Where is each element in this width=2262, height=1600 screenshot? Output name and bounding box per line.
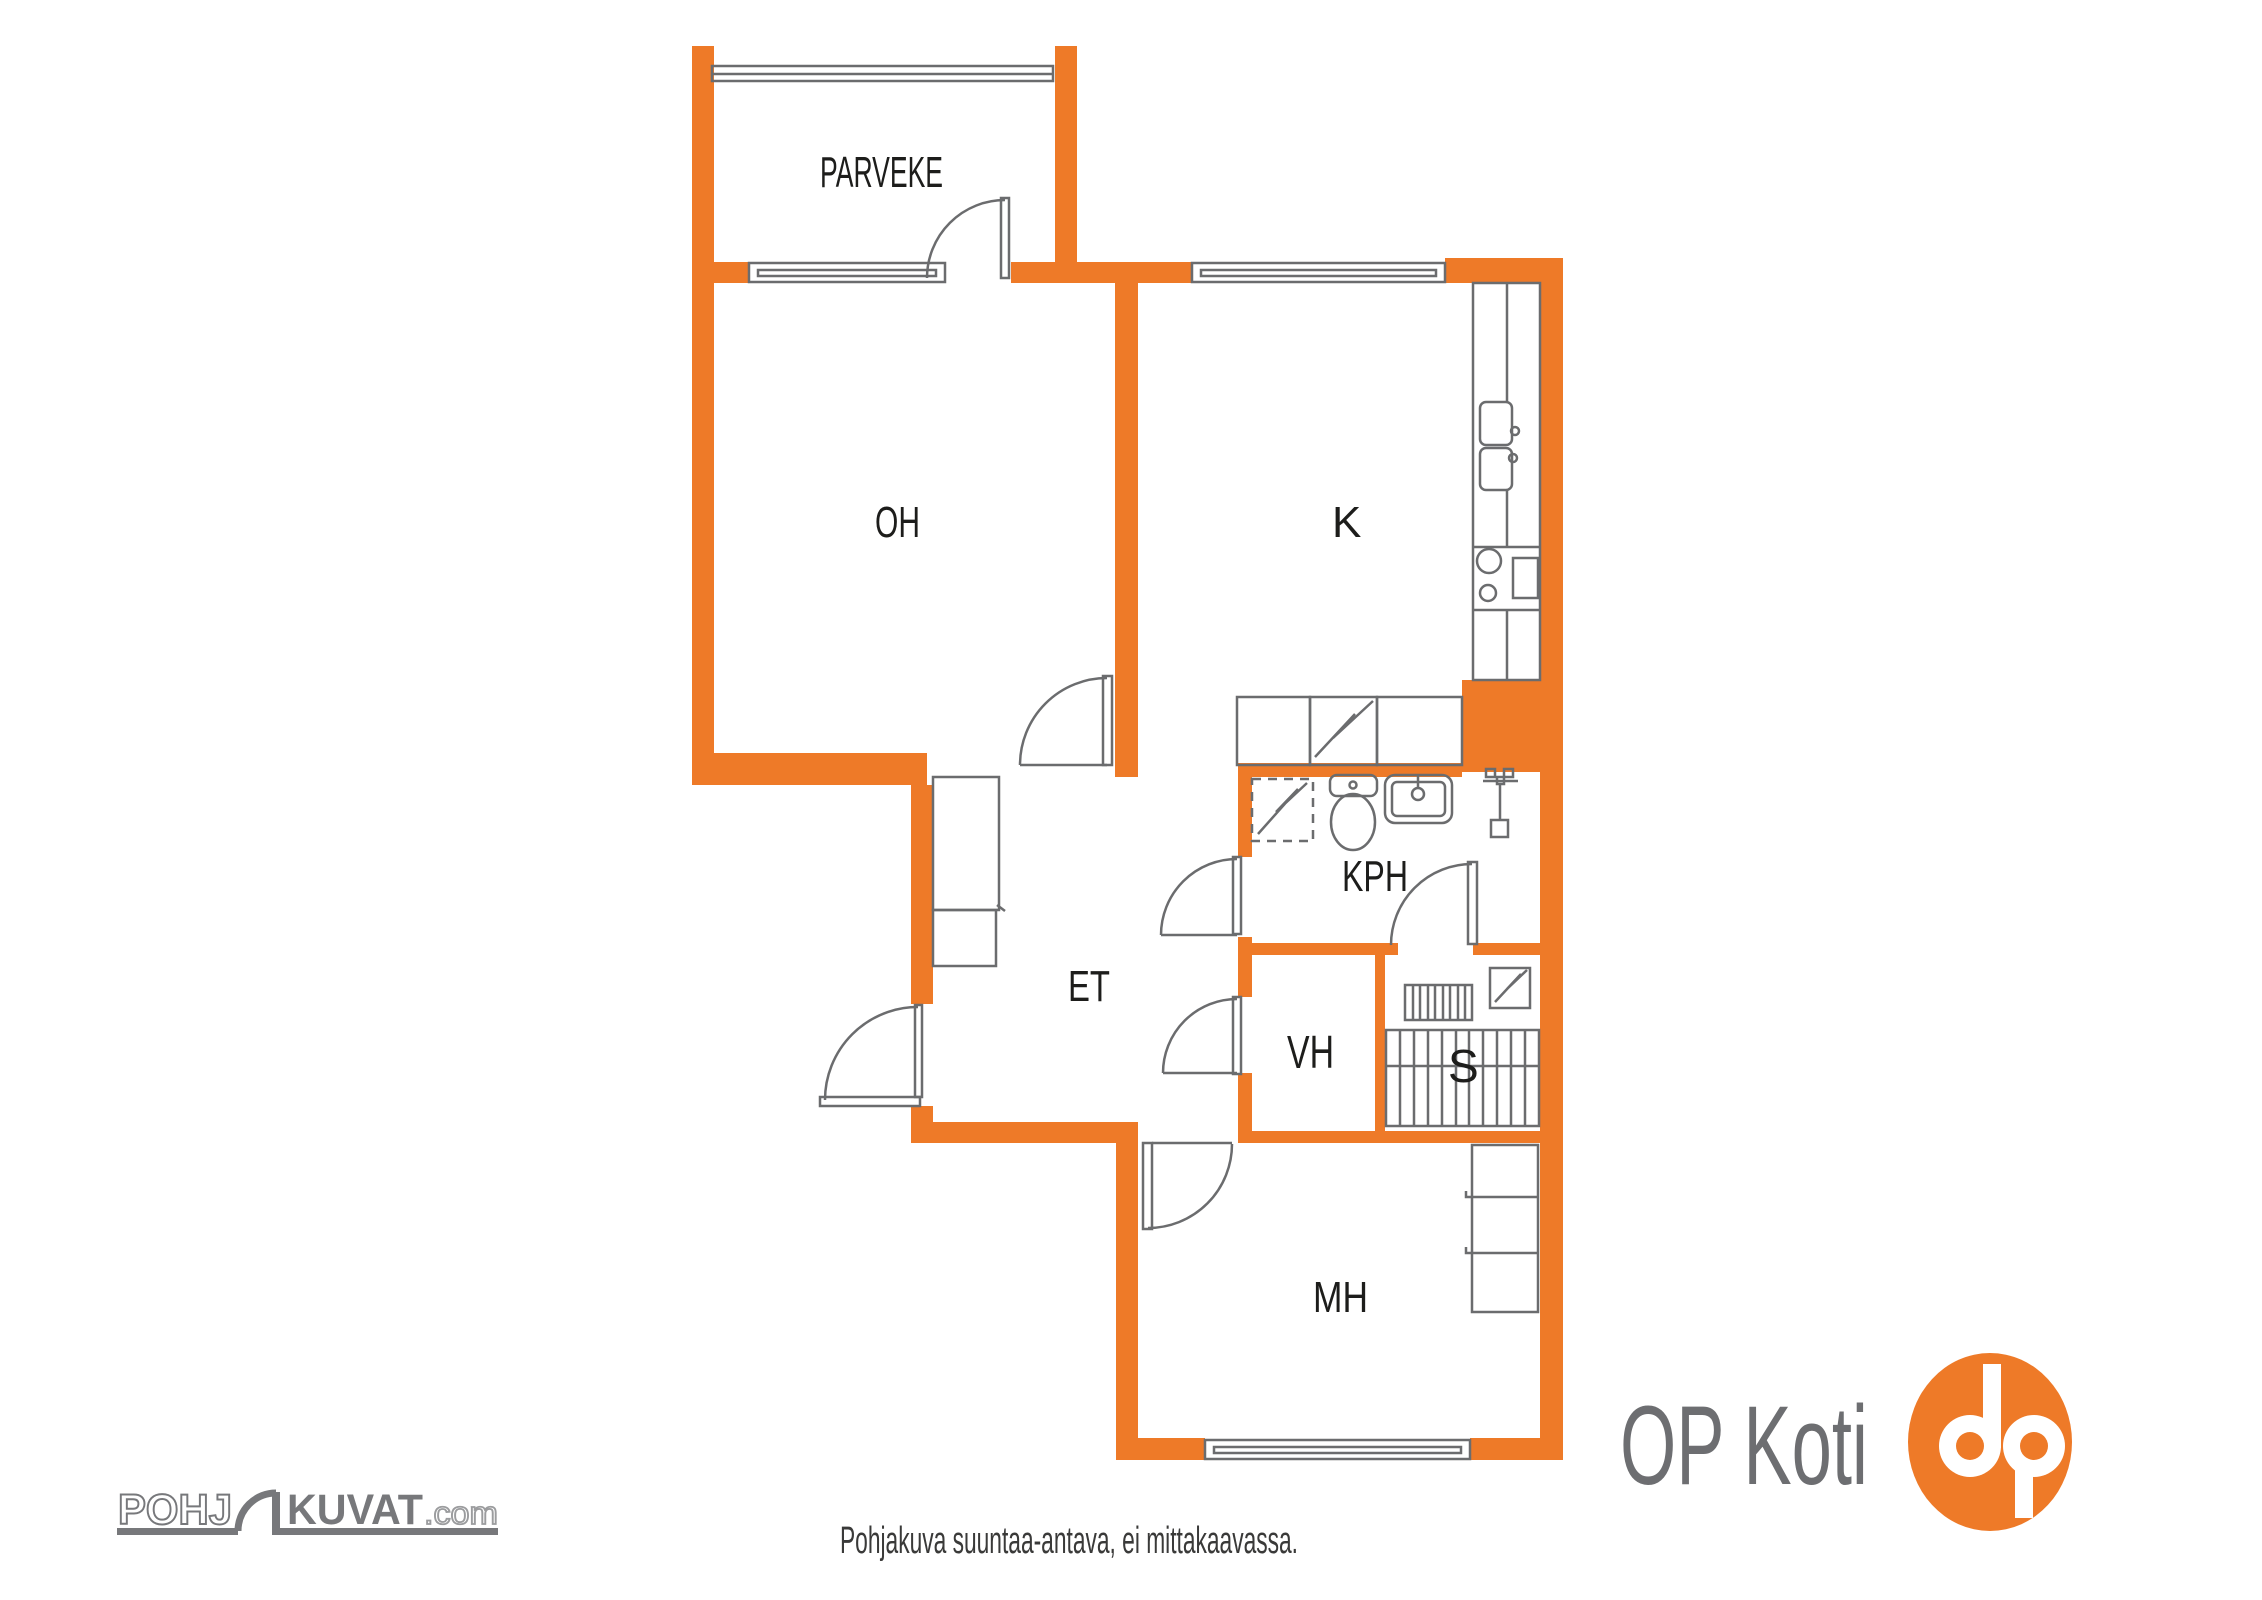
- floorplan-page: PARVEKE OH K KPH ET VH S MH Pohjakuva su…: [0, 0, 2262, 1600]
- balcony-railing: [712, 66, 1053, 81]
- room-label-oh: OH: [875, 498, 920, 547]
- kitchen-sink: [1480, 402, 1519, 490]
- door-entrance: [820, 1005, 922, 1106]
- wall-balcony-right: [1055, 46, 1077, 262]
- floorplan-drawing: PARVEKE OH K KPH ET VH S MH Pohjakuva su…: [0, 0, 2262, 1600]
- pohjakuvat-logo-door-post: [272, 1492, 280, 1535]
- wall-mh-bottom-right: [1470, 1438, 1563, 1460]
- window-mh: [1205, 1440, 1470, 1459]
- room-labels: PARVEKE OH K KPH ET VH S MH: [820, 148, 1479, 1322]
- pohjakuvat-logo-pohj: POHJ: [118, 1486, 232, 1534]
- wall-et-left-upper: [911, 785, 933, 1004]
- op-koti-logo: OP Koti: [1620, 1353, 2072, 1531]
- pohjakuvat-logo-kuvat: KUVAT: [287, 1486, 423, 1534]
- op-koti-logo-text: OP Koti: [1620, 1383, 1868, 1508]
- wall-oh-k-divider: [1115, 262, 1138, 777]
- wall-sauna-top-left: [1238, 943, 1398, 955]
- walls: [692, 46, 1563, 1460]
- wall-oh-top-left: [692, 262, 749, 283]
- wall-mh-top: [1238, 1131, 1563, 1143]
- door-vh: [1163, 997, 1241, 1074]
- room-label-kph: KPH: [1342, 852, 1408, 901]
- room-label-vh: VH: [1287, 1026, 1334, 1078]
- toilet: [1330, 775, 1377, 850]
- wall-mh-bottom-left: [1116, 1438, 1205, 1460]
- pohjakuvat-logo: POHJ KUVAT .com: [117, 1486, 498, 1535]
- disclaimer-text: Pohjakuva suuntaa-antava, ei mittakaavas…: [840, 1520, 1298, 1562]
- wall-vh-s-divider: [1375, 955, 1385, 1131]
- fridge-cabinet-row: [1237, 697, 1462, 765]
- wardrobe-mh: [1466, 1145, 1538, 1312]
- door-balcony: [927, 198, 1009, 278]
- washer-reservation: [1252, 779, 1313, 841]
- op-logo-icon: [1908, 1353, 2072, 1531]
- door-oh-et: [1020, 676, 1112, 765]
- wall-top-right-corner: [1445, 258, 1563, 283]
- wall-balcony-oh-left: [692, 46, 714, 785]
- room-label-k: K: [1332, 498, 1361, 547]
- shower: [1483, 769, 1518, 837]
- wall-sauna-top-right: [1473, 943, 1540, 955]
- window-k: [1192, 263, 1445, 282]
- pohjakuvat-logo-baseline-left: [117, 1528, 238, 1535]
- sauna-bench-upper: [1405, 985, 1472, 1020]
- window-oh: [749, 263, 945, 282]
- room-label-s: S: [1448, 1040, 1479, 1092]
- wardrobe-et: [933, 777, 1005, 966]
- wall-right-exterior: [1540, 283, 1563, 1460]
- room-label-et: ET: [1068, 962, 1110, 1011]
- washbasin: [1385, 775, 1452, 823]
- kitchen-counter: [1473, 283, 1540, 680]
- room-label-mh: MH: [1313, 1273, 1368, 1322]
- pohjakuvat-logo-door-arc-icon: [238, 1493, 276, 1531]
- wall-mid-vertical-a: [1238, 763, 1252, 857]
- room-label-parveke: PARVEKE: [820, 148, 943, 197]
- sauna-heater: [1490, 968, 1530, 1008]
- door-kph: [1161, 857, 1241, 935]
- wall-kitchen-block: [1462, 680, 1542, 772]
- wall-mh-left: [1116, 1143, 1138, 1460]
- wall-oh-bottom: [692, 753, 927, 785]
- wall-top-middle: [1011, 262, 1192, 283]
- stove: [1477, 549, 1538, 601]
- door-mh: [1143, 1143, 1232, 1229]
- pohjakuvat-logo-com: .com: [424, 1495, 498, 1531]
- wall-et-bottom: [911, 1122, 1138, 1143]
